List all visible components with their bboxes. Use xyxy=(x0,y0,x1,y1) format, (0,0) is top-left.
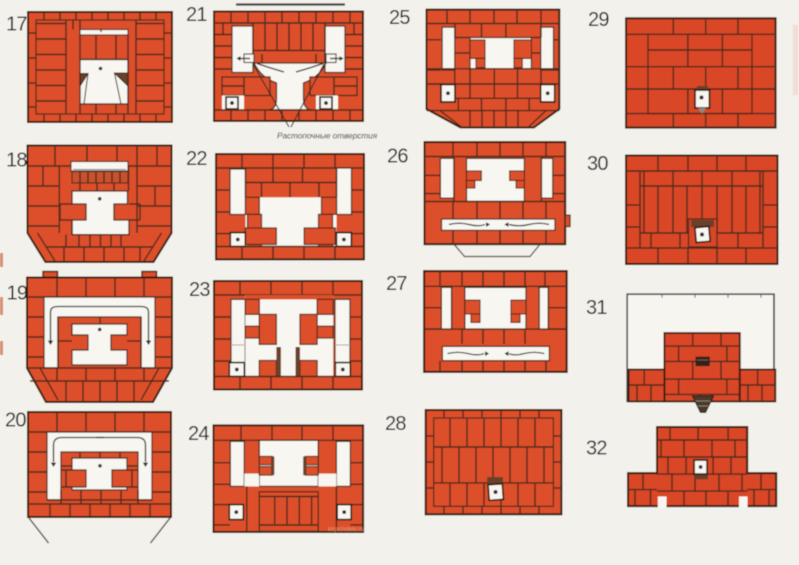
svg-text:Растопочные отверстия: Растопочные отверстия xyxy=(277,132,378,141)
svg-text:27: 27 xyxy=(386,273,407,295)
svg-text:32: 32 xyxy=(586,438,607,460)
svg-text:19: 19 xyxy=(7,283,28,305)
svg-text:21: 21 xyxy=(186,4,207,26)
svg-text:28: 28 xyxy=(385,413,406,435)
svg-text:23: 23 xyxy=(189,279,210,301)
svg-text:17: 17 xyxy=(6,14,27,36)
svg-text:29: 29 xyxy=(588,9,609,31)
svg-text:31: 31 xyxy=(586,297,607,319)
svg-text:24: 24 xyxy=(188,423,209,445)
svg-text:30: 30 xyxy=(587,153,608,175)
svg-text:18: 18 xyxy=(6,150,27,172)
svg-text:25: 25 xyxy=(389,7,410,29)
svg-text:20: 20 xyxy=(5,410,26,432)
svg-text:22: 22 xyxy=(186,148,207,170)
svg-text:26: 26 xyxy=(387,146,408,168)
svg-text:kirpichdelo.ru: kirpichdelo.ru xyxy=(328,527,364,533)
